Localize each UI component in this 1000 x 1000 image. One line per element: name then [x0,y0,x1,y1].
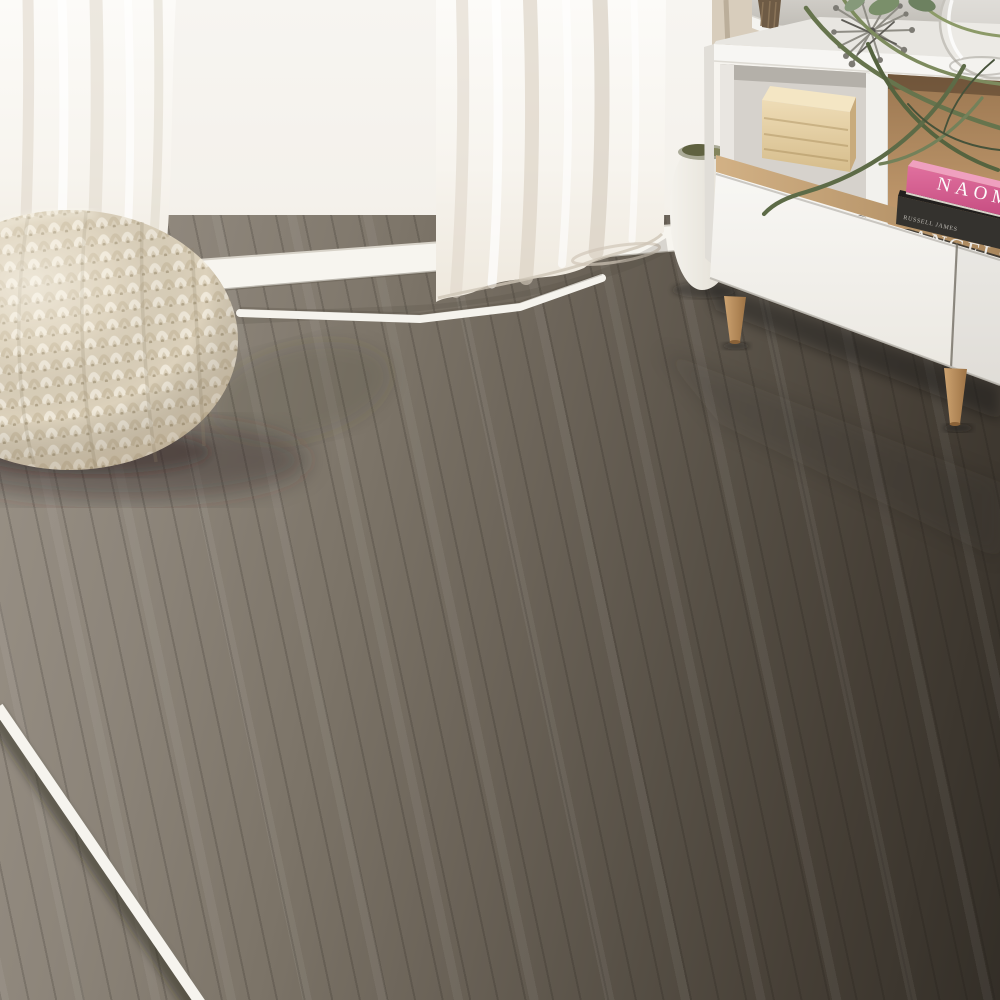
console-shadow-on-rug [660,350,1000,560]
foreground [0,0,1000,1000]
living-room-photo: RUSSELL JAMES ANGELS NAOM [0,0,1000,1000]
rug-edge-bottom-left [0,703,206,1000]
knitted-pouf [0,210,238,470]
rug-edge-top-left [240,274,602,319]
